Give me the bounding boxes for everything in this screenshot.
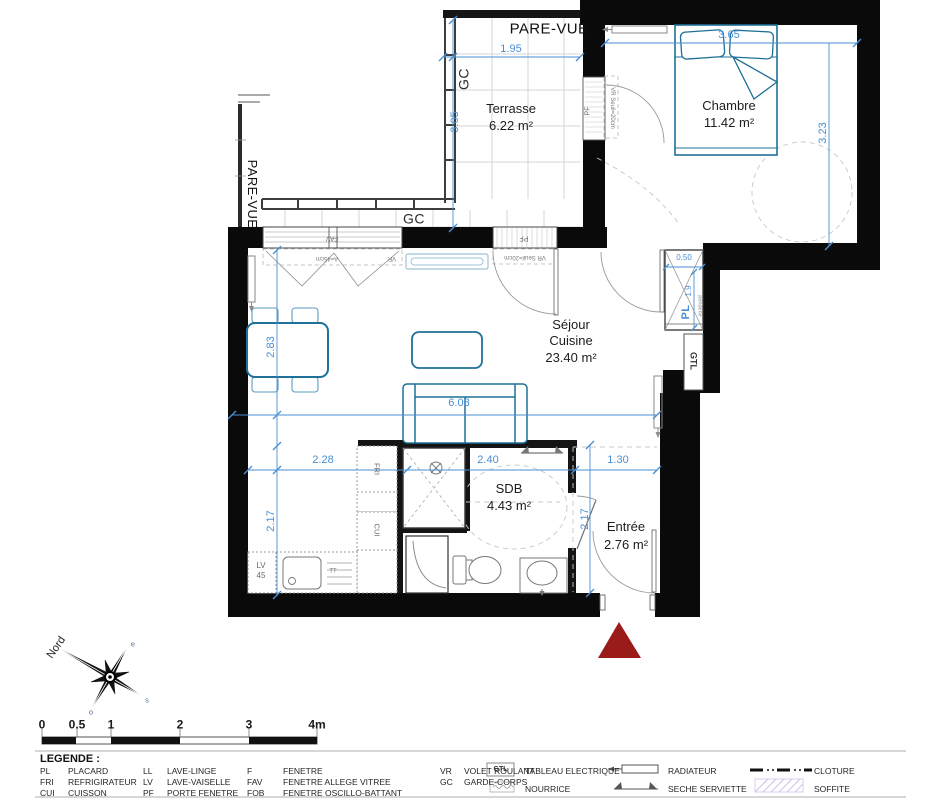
legend-label: FENETRE OSCILLO-BATTANT [283, 788, 402, 798]
penderie-label: penderie [696, 295, 703, 316]
dishwasher-label: LV [256, 561, 265, 571]
legend-label: SECHE SERVIETTE [668, 784, 747, 794]
pf-window-label: PF [520, 233, 529, 242]
legend-abbr: LL [143, 766, 152, 776]
dim-terrace-height: 3.05 [449, 111, 463, 132]
legend-label: TABLEAU ELECTRIQUE [525, 766, 620, 776]
legend-abbr: FOB [247, 788, 264, 798]
pare-vue-left-label: PARE-VUE [244, 160, 260, 229]
legend-label: REFRIGIRATEUR [68, 777, 137, 787]
scale-tick-0: 0 [39, 718, 46, 733]
soffite-dashed-outlines [461, 142, 852, 592]
floor-plan-drawing [0, 0, 941, 800]
cuisine-name: Cuisine [549, 333, 592, 349]
pare-vue-top-label: PARE-VUE [510, 21, 589, 40]
sofa [403, 384, 527, 443]
floor-plan-page: PARE-VUE PARE-VUE GC GC Terrasse 6.22 m²… [0, 0, 941, 800]
legend-title: LEGENDE : [40, 753, 100, 765]
chambre-door-vr-label: VR Seuil=20cm [607, 87, 615, 129]
sdb-area: 4.43 m² [487, 498, 531, 514]
legend-label: RADIATEUR [668, 766, 717, 776]
legend-gtl-symbol-text: GTL [487, 766, 514, 773]
cooktop-label: CUI [372, 524, 381, 537]
sink-tap-label: TT [329, 568, 336, 576]
legend-abbr: LV [143, 777, 153, 787]
bed [675, 25, 777, 155]
fav-vr-label: VR [388, 253, 396, 261]
fav-window-label: FAV [326, 233, 339, 242]
fridge-label: FRI [372, 463, 381, 475]
compass-east-label: e [131, 639, 135, 648]
bathroom-cabinet [406, 536, 448, 593]
coffee-table [412, 332, 482, 368]
legend-abbr: CUI [40, 788, 55, 798]
legend-label: PORTE FENETRE [167, 788, 238, 798]
legend-seche-serviette-symbol [614, 782, 658, 789]
pf-vr-label: VR Seuil=20cm [504, 252, 546, 260]
chambre-terrace-door [583, 76, 664, 143]
legend-abbr: GC [440, 777, 453, 787]
legend-soffite-symbol [755, 779, 803, 792]
scale-tick-1: 1 [108, 718, 115, 733]
legend-abbr: F [247, 766, 252, 776]
dim-placard-height: 1.9 [684, 285, 694, 296]
legend-label: LAVE-VAISELLE [167, 777, 230, 787]
scale-tick-2: 2 [177, 718, 184, 733]
pare-vue-screens [235, 10, 590, 227]
legend-abbr: FAV [247, 777, 262, 787]
placard-label: PL [680, 304, 694, 319]
gtl-label: GTL [687, 352, 698, 370]
legend-label: FENETRE [283, 766, 323, 776]
entree-area: 2.76 m² [604, 537, 648, 553]
dim-placard-width: 0.50 [676, 253, 692, 263]
legend-label: NOURRICE [525, 784, 570, 794]
dim-chambre-height: 3.23 [817, 122, 831, 143]
legend-label: PLACARD [68, 766, 108, 776]
dim-sejour-left: 2.83 [265, 336, 279, 357]
fav-allege-label: A=45cm [316, 253, 338, 261]
legend-label: LAVE-LINGE [167, 766, 216, 776]
chambre-name: Chambre [702, 98, 755, 114]
scale-tick-05: 0.5 [69, 718, 86, 733]
dim-kitchen-height: 2.17 [265, 510, 279, 531]
dim-terrace-width: 1.95 [500, 43, 521, 57]
chambre-door-pf-label: PF [585, 107, 594, 116]
legend-abbr: PF [143, 788, 154, 798]
dim-entree-width: 1.30 [607, 454, 628, 468]
toilet [453, 556, 501, 584]
dim-kitchen-width: 2.28 [312, 454, 333, 468]
garde-corps-railing [262, 18, 455, 209]
dining-table-chairs [247, 308, 328, 392]
chambre-area: 11.42 m² [704, 115, 754, 131]
compass-south-label: s [145, 695, 149, 704]
legend-abbr: VR [440, 766, 452, 776]
sejour-name: Séjour [552, 317, 590, 333]
dishwasher-size-label: 45 [257, 571, 266, 581]
compass-west-label: o [89, 707, 93, 716]
scale-tick-4m: 4m [308, 718, 325, 733]
legend-label: FENETRE ALLEGE VITREE [283, 777, 391, 787]
legend-label: CUISSON [68, 788, 107, 798]
sejour-area: 23.40 m² [545, 350, 596, 366]
dim-sejour-width: 6.08 [448, 397, 469, 411]
entrance-triangle-marker [598, 622, 641, 658]
legend-abbr: FRI [40, 777, 54, 787]
washbasin [520, 558, 567, 596]
scale-tick-3: 3 [246, 718, 253, 733]
gc-bottom-label: GC [403, 210, 425, 228]
gc-left-label: GC [455, 68, 473, 90]
legend-label: GARDE-CORPS [464, 777, 527, 787]
terrasse-area: 6.22 m² [489, 118, 533, 134]
chambre-sejour-door [601, 250, 664, 312]
dim-sdb-width: 2.40 [477, 454, 498, 468]
shower [403, 448, 465, 528]
dim-entree-height: 2.17 [579, 508, 593, 529]
entree-name: Entrée [607, 519, 645, 535]
dim-chambre-width: 3.65 [718, 29, 739, 43]
terrasse-name: Terrasse [486, 101, 536, 117]
legend-label: SOFFITE [814, 784, 850, 794]
compass-rose [62, 649, 139, 706]
sdb-name: SDB [496, 481, 523, 497]
legend-label: CLOTURE [814, 766, 855, 776]
legend-abbr: PL [40, 766, 50, 776]
